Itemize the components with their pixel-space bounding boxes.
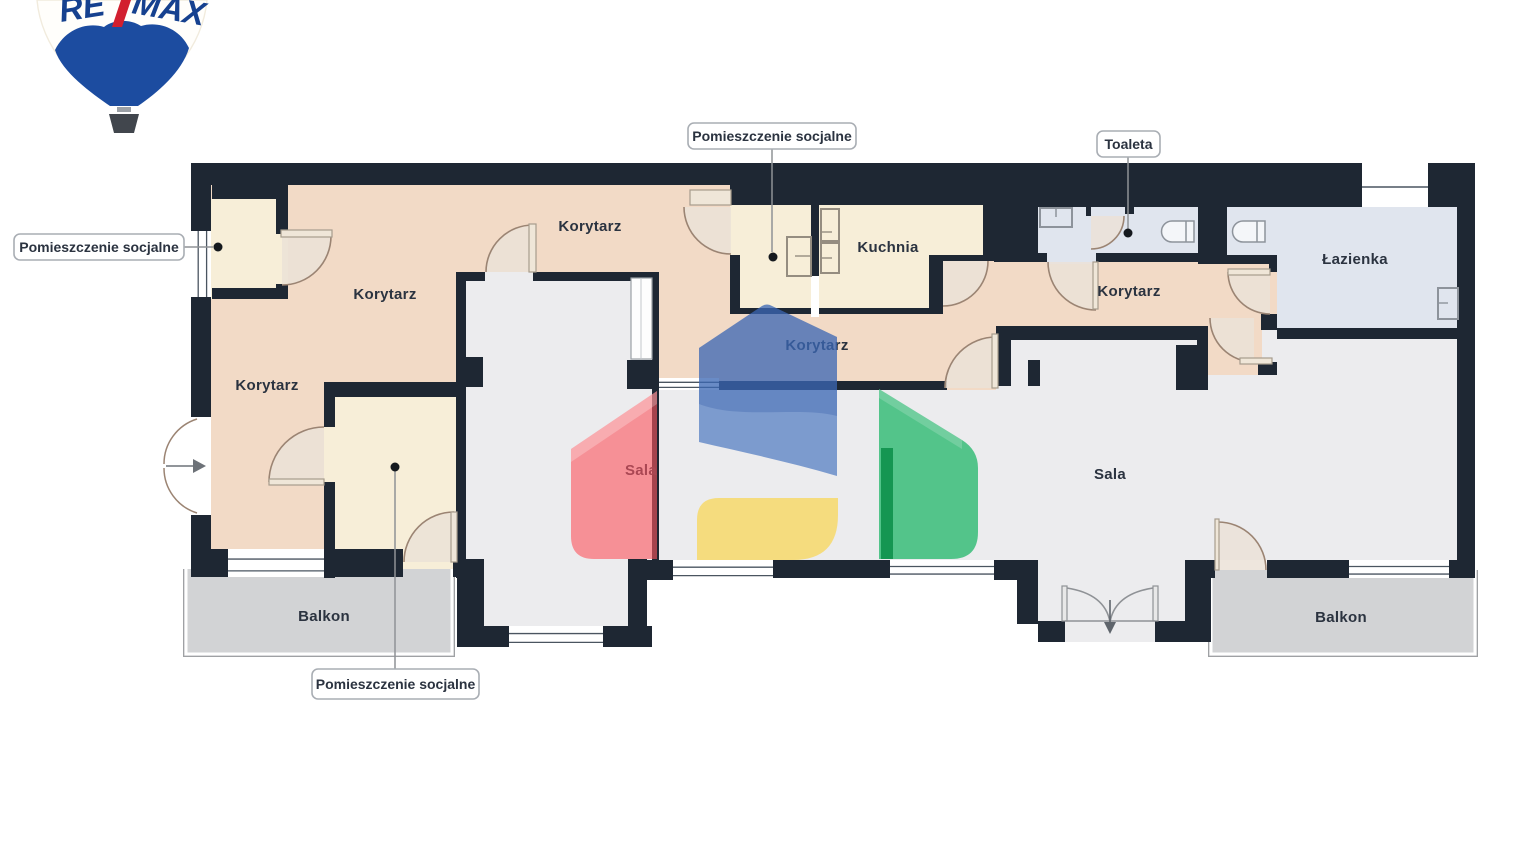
svg-text:Pomieszczenie socjalne: Pomieszczenie socjalne — [19, 239, 179, 255]
svg-text:Korytarz: Korytarz — [235, 377, 298, 394]
svg-text:Korytarz: Korytarz — [353, 286, 416, 303]
svg-text:Kuchnia: Kuchnia — [857, 239, 919, 256]
svg-text:Pomieszczenie socjalne: Pomieszczenie socjalne — [316, 676, 476, 692]
svg-text:Łazienka: Łazienka — [1322, 251, 1388, 268]
svg-text:Sala: Sala — [1094, 466, 1126, 483]
svg-text:Balkon: Balkon — [298, 608, 350, 625]
svg-text:Korytarz: Korytarz — [1097, 283, 1160, 300]
svg-text:Toaleta: Toaleta — [1105, 136, 1153, 152]
svg-text:Korytarz: Korytarz — [558, 218, 621, 235]
svg-text:Balkon: Balkon — [1315, 609, 1367, 626]
svg-text:Pomieszczenie socjalne: Pomieszczenie socjalne — [692, 128, 852, 144]
